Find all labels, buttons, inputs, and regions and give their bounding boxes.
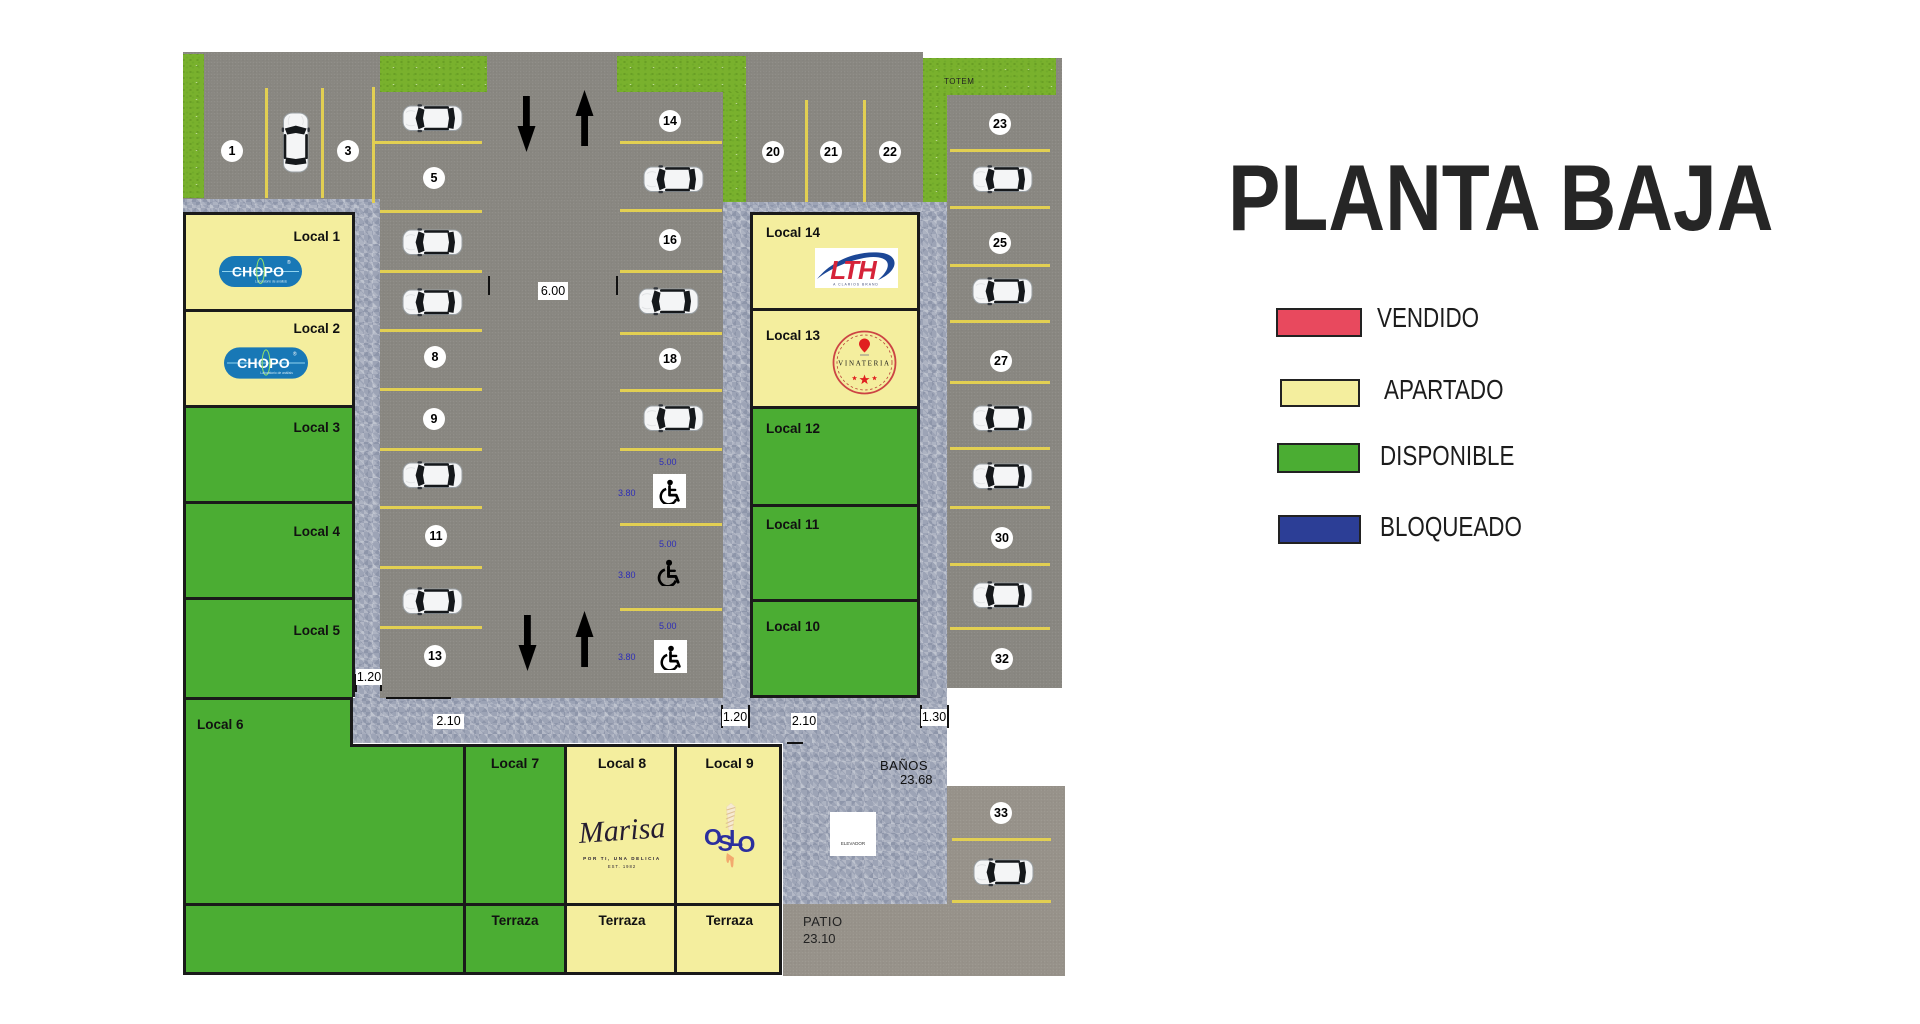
- svg-text:Laboratorio de análisis: Laboratorio de análisis: [255, 280, 287, 284]
- svg-text:®: ®: [293, 350, 297, 357]
- svg-text:CHOPO: CHOPO: [237, 356, 290, 372]
- svg-text:VINATERIA: VINATERIA: [838, 360, 891, 368]
- svg-text:A CLARIOS BRAND: A CLARIOS BRAND: [833, 283, 879, 287]
- svg-text:CHOPO: CHOPO: [232, 264, 284, 280]
- svg-text:Laboratorio de análisis: Laboratorio de análisis: [260, 371, 293, 375]
- svg-text:®: ®: [287, 259, 291, 266]
- svg-text:O: O: [738, 831, 756, 857]
- svg-text:LTH: LTH: [830, 255, 878, 285]
